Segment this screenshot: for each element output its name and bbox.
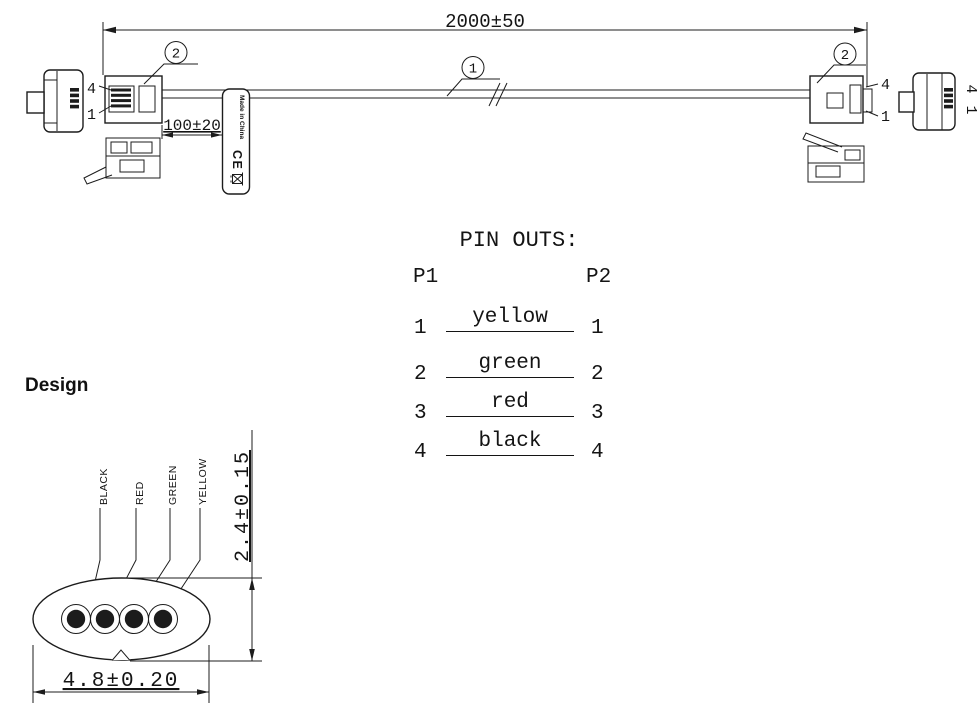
pinout-row: 3 red 3 bbox=[403, 389, 621, 417]
cable-jacket-outline bbox=[33, 578, 210, 661]
height-dimension-text: 2.4±0.15 bbox=[232, 450, 255, 562]
pinout-wire-name: green bbox=[446, 351, 574, 378]
pinout-left-pin: 1 bbox=[414, 317, 427, 340]
cable-assembly-drawing: 2000±50 1 4 1 bbox=[0, 0, 977, 218]
tail-length-dimension: 100±20 bbox=[162, 117, 222, 139]
green-label: GREEN bbox=[167, 465, 179, 505]
connector-side-right: 4 1 bbox=[810, 76, 890, 126]
tail-dimension-text: 100±20 bbox=[163, 117, 221, 135]
pin1-label-front-right: 1 bbox=[962, 105, 977, 114]
length-dimension-text: 2000±50 bbox=[445, 11, 525, 33]
pinout-left-pin: 2 bbox=[414, 363, 427, 386]
pinout-row: 1 yellow 1 bbox=[403, 304, 621, 332]
pin1-label-right: 1 bbox=[881, 109, 890, 126]
cable-cross-section: BLACK RED GREEN YELLOW bbox=[0, 420, 300, 715]
plug-3d-right bbox=[803, 133, 864, 182]
pinout-right-pin: 1 bbox=[591, 317, 604, 340]
ce-mark: CE bbox=[230, 150, 244, 170]
pinouts-p2-header: P2 bbox=[586, 266, 611, 289]
pinout-wire-name: black bbox=[446, 429, 574, 456]
pin4-label-left: 4 bbox=[87, 81, 96, 98]
pinout-right-pin: 2 bbox=[591, 363, 604, 386]
cable-label-tag: Made in China CE bbox=[223, 89, 250, 194]
pinout-wire-name: yellow bbox=[446, 305, 574, 332]
pin4-label-right: 4 bbox=[881, 77, 890, 94]
pinouts-title: PIN OUTS: bbox=[417, 228, 621, 253]
pinout-left-pin: 3 bbox=[414, 402, 427, 425]
pin1-label-left: 1 bbox=[87, 107, 96, 124]
red-label: RED bbox=[134, 481, 146, 505]
pinout-wire-name: red bbox=[446, 390, 574, 417]
connector-front-left bbox=[27, 70, 83, 132]
width-dimension-text: 4.8±0.20 bbox=[63, 670, 180, 693]
callout-2-text-right: 2 bbox=[841, 48, 849, 64]
overall-length-dimension: 2000±50 bbox=[103, 11, 867, 87]
design-heading: Design bbox=[25, 375, 88, 397]
pinout-left-pin: 4 bbox=[414, 441, 427, 464]
made-in-china-text: Made in China bbox=[238, 95, 245, 139]
callout-1-text: 1 bbox=[469, 62, 477, 78]
connector-front-right: 4 1 bbox=[899, 73, 977, 130]
cable-break-symbol bbox=[489, 83, 507, 106]
pinouts-table: PIN OUTS: P1 P2 1 yellow 1 2 green 2 3 r… bbox=[403, 228, 621, 468]
cable bbox=[162, 83, 810, 106]
pinout-row: 2 green 2 bbox=[403, 350, 621, 378]
plug-3d-left bbox=[84, 138, 160, 184]
pinouts-p1-header: P1 bbox=[413, 266, 438, 289]
pinout-right-pin: 4 bbox=[591, 441, 604, 464]
black-label: BLACK bbox=[98, 468, 110, 505]
callout-2-text-left: 2 bbox=[172, 47, 180, 63]
conductor-labels: BLACK RED GREEN YELLOW bbox=[98, 458, 209, 505]
pinout-row: 4 black 4 bbox=[403, 428, 621, 456]
connector-side-left: 4 1 bbox=[87, 76, 162, 124]
drawing-sheet: 2000±50 1 4 1 bbox=[0, 0, 977, 715]
pin4-label-front-right: 4 bbox=[962, 84, 977, 93]
yellow-label: YELLOW bbox=[197, 458, 209, 505]
pinout-right-pin: 3 bbox=[591, 402, 604, 425]
